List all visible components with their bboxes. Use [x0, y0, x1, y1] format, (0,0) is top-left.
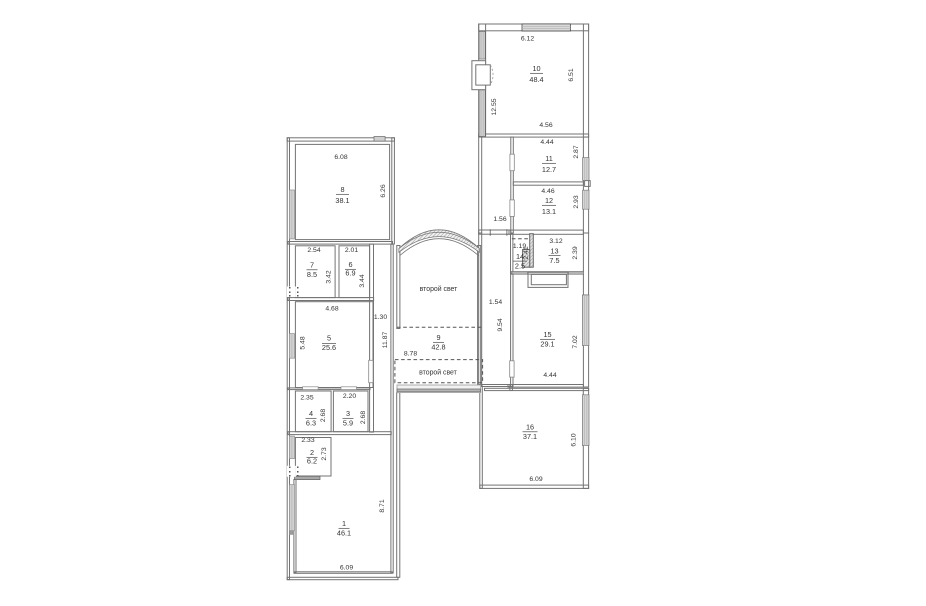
svg-text:13.1: 13.1 [542, 207, 556, 216]
svg-text:4.44: 4.44 [540, 139, 553, 146]
svg-text:1: 1 [342, 519, 346, 528]
svg-text:второй свет: второй свет [420, 285, 458, 293]
svg-text:6.08: 6.08 [334, 154, 347, 161]
svg-text:42.8: 42.8 [431, 343, 445, 352]
svg-text:4.56: 4.56 [539, 122, 552, 129]
svg-text:1.56: 1.56 [493, 216, 506, 223]
svg-text:2.68: 2.68 [360, 411, 367, 424]
svg-text:2.93: 2.93 [573, 195, 580, 208]
svg-text:4.68: 4.68 [325, 306, 338, 313]
svg-text:6.12: 6.12 [521, 36, 534, 43]
svg-text:12.7: 12.7 [542, 165, 556, 174]
svg-text:11.87: 11.87 [382, 332, 389, 349]
svg-text:48.4: 48.4 [529, 75, 543, 84]
svg-text:46.1: 46.1 [337, 529, 351, 538]
svg-text:10: 10 [532, 64, 540, 73]
svg-text:3.12: 3.12 [549, 238, 562, 245]
svg-text:9.54: 9.54 [497, 318, 504, 331]
svg-text:6.10: 6.10 [571, 433, 578, 446]
svg-text:5.48: 5.48 [300, 336, 307, 349]
svg-text:второй свет: второй свет [419, 369, 457, 377]
svg-text:12: 12 [545, 196, 553, 205]
svg-text:4.44: 4.44 [543, 372, 556, 379]
svg-text:2.35: 2.35 [300, 395, 313, 402]
svg-text:3.42: 3.42 [326, 270, 333, 283]
svg-text:16: 16 [526, 423, 534, 432]
svg-text:1.30: 1.30 [374, 314, 387, 321]
svg-text:8.78: 8.78 [404, 351, 417, 358]
svg-text:37.1: 37.1 [523, 432, 537, 441]
svg-text:5.9: 5.9 [343, 419, 353, 428]
svg-text:11: 11 [545, 154, 553, 163]
svg-text:38.1: 38.1 [335, 196, 349, 205]
svg-text:14: 14 [516, 252, 524, 261]
svg-text:4: 4 [309, 409, 313, 418]
svg-text:2.39: 2.39 [572, 246, 579, 259]
svg-text:7: 7 [310, 261, 314, 270]
svg-text:12.55: 12.55 [491, 98, 498, 115]
svg-text:3.44: 3.44 [359, 274, 366, 287]
svg-text:13: 13 [550, 246, 558, 255]
svg-text:8: 8 [340, 185, 344, 194]
svg-text:25.6: 25.6 [322, 343, 336, 352]
svg-text:2.5: 2.5 [515, 261, 525, 270]
svg-text:2.68: 2.68 [320, 409, 327, 422]
svg-text:2.54: 2.54 [307, 247, 320, 254]
svg-text:4.46: 4.46 [541, 188, 554, 195]
svg-text:15: 15 [543, 330, 551, 339]
svg-text:1.54: 1.54 [489, 299, 502, 306]
svg-text:6.09: 6.09 [340, 565, 353, 572]
svg-text:7.5: 7.5 [549, 256, 559, 265]
svg-text:6.09: 6.09 [529, 476, 542, 483]
svg-text:7.02: 7.02 [572, 335, 579, 348]
svg-text:6.9: 6.9 [345, 269, 355, 278]
svg-text:2.01: 2.01 [345, 247, 358, 254]
svg-text:6.3: 6.3 [306, 419, 316, 428]
svg-text:6.51: 6.51 [568, 68, 575, 81]
svg-text:6.2: 6.2 [307, 457, 317, 466]
svg-text:9: 9 [436, 333, 440, 342]
svg-text:5: 5 [327, 334, 331, 343]
svg-text:29.1: 29.1 [540, 340, 554, 349]
svg-text:2.73: 2.73 [321, 447, 328, 460]
svg-text:2.87: 2.87 [573, 145, 580, 158]
svg-text:2.33: 2.33 [301, 437, 314, 444]
svg-text:8.5: 8.5 [307, 270, 317, 279]
svg-text:6.26: 6.26 [380, 184, 387, 197]
svg-text:3: 3 [346, 409, 350, 418]
svg-text:2.20: 2.20 [343, 393, 356, 400]
svg-text:8.71: 8.71 [379, 499, 386, 512]
